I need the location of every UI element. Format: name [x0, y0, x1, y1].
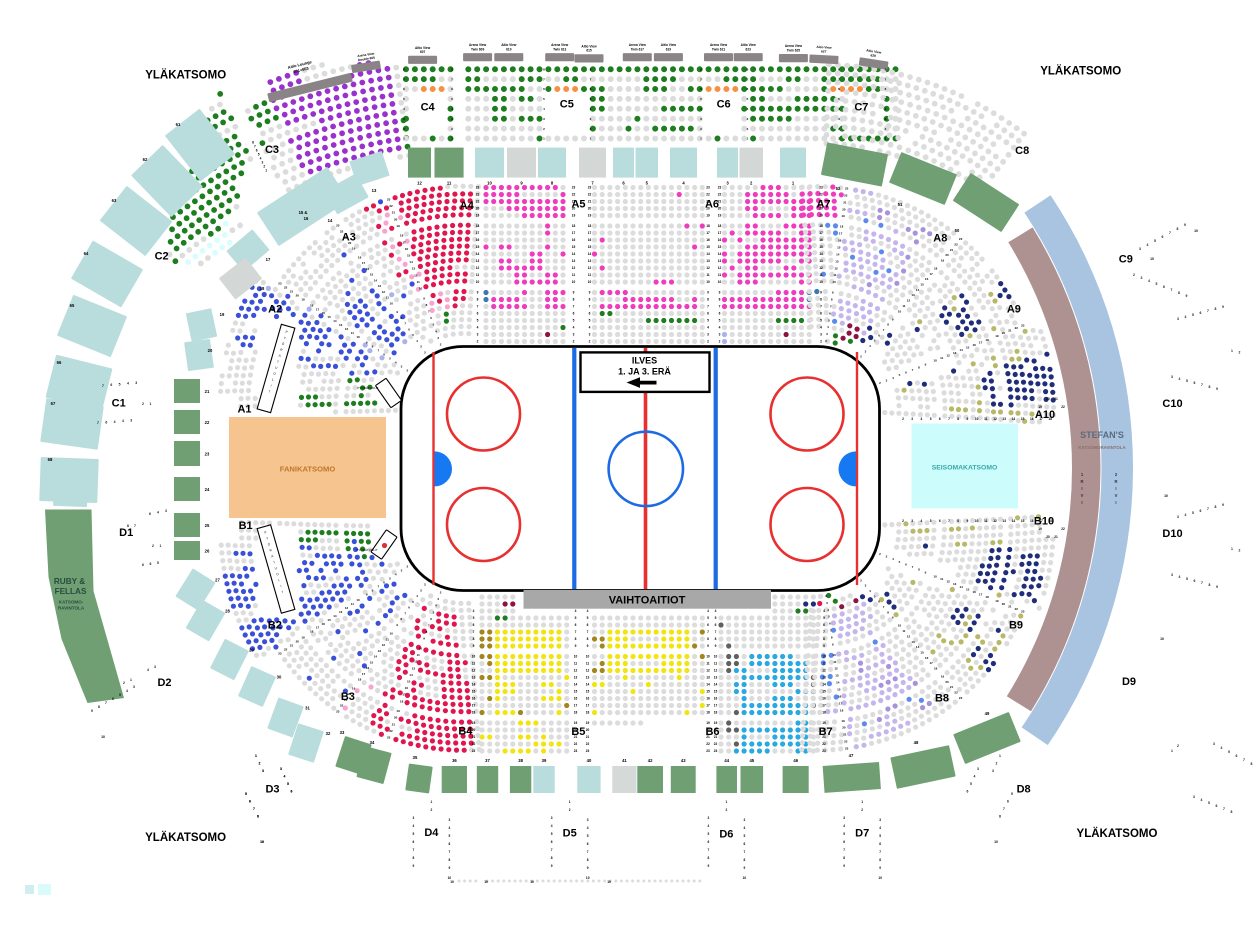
svg-text:610: 610	[506, 47, 512, 51]
svg-text:6: 6	[1007, 800, 1009, 804]
svg-text:6: 6	[256, 149, 258, 153]
svg-text:5: 5	[843, 832, 845, 836]
svg-text:5: 5	[707, 319, 709, 323]
svg-text:18: 18	[310, 303, 314, 307]
svg-text:619: 619	[666, 47, 672, 51]
svg-text:18: 18	[400, 699, 404, 703]
svg-text:11: 11	[572, 273, 576, 277]
svg-text:19: 19	[941, 259, 945, 263]
svg-text:15: 15	[407, 254, 411, 258]
svg-text:22: 22	[714, 742, 718, 746]
svg-text:17: 17	[979, 340, 983, 344]
svg-text:1: 1	[726, 800, 728, 804]
svg-text:14: 14	[476, 252, 480, 256]
svg-text:D10: D10	[1162, 528, 1182, 540]
svg-text:16: 16	[714, 697, 718, 701]
svg-text:23: 23	[387, 736, 391, 740]
svg-text:ILVES: ILVES	[632, 356, 657, 366]
svg-text:10: 10	[819, 280, 823, 284]
svg-text:15: 15	[837, 246, 841, 250]
svg-text:5: 5	[930, 519, 932, 523]
svg-text:11: 11	[714, 662, 718, 666]
svg-text:615: 615	[586, 49, 592, 53]
svg-text:5: 5	[245, 792, 247, 796]
svg-text:A9: A9	[1007, 304, 1021, 316]
svg-text:20: 20	[842, 207, 846, 211]
svg-text:18: 18	[934, 267, 938, 271]
svg-text:4: 4	[122, 419, 124, 423]
svg-text:9: 9	[91, 709, 93, 713]
svg-text:23: 23	[959, 696, 963, 700]
svg-text:6: 6	[249, 800, 251, 804]
svg-text:19: 19	[530, 880, 534, 884]
svg-text:13: 13	[822, 676, 826, 680]
svg-text:14: 14	[836, 252, 840, 256]
svg-text:2: 2	[152, 544, 154, 548]
svg-text:16: 16	[588, 238, 592, 242]
svg-text:9: 9	[589, 291, 591, 295]
svg-text:17: 17	[316, 626, 320, 630]
svg-text:7: 7	[1003, 807, 1005, 811]
svg-text:35: 35	[413, 755, 418, 760]
svg-text:4: 4	[575, 609, 577, 613]
svg-text:19: 19	[995, 599, 999, 603]
svg-text:22: 22	[389, 204, 393, 208]
svg-text:2: 2	[820, 340, 822, 344]
svg-text:I: I	[1081, 500, 1082, 505]
svg-text:4: 4	[974, 775, 976, 779]
svg-text:1: 1	[130, 678, 132, 682]
svg-text:6: 6	[1163, 285, 1165, 289]
svg-text:7: 7	[707, 630, 709, 634]
svg-text:7: 7	[413, 848, 415, 852]
svg-text:14: 14	[836, 681, 840, 685]
svg-text:10: 10	[101, 735, 105, 739]
svg-text:9: 9	[708, 864, 710, 868]
svg-text:10: 10	[832, 653, 836, 657]
svg-text:23: 23	[1021, 323, 1025, 327]
svg-text:22: 22	[1015, 607, 1019, 611]
svg-text:50: 50	[955, 228, 960, 233]
svg-text:19: 19	[995, 334, 999, 338]
svg-text:6: 6	[879, 842, 881, 846]
svg-text:52: 52	[836, 186, 841, 191]
svg-text:17: 17	[822, 704, 826, 708]
svg-text:21: 21	[1008, 604, 1012, 608]
svg-text:19: 19	[941, 675, 945, 679]
svg-text:43: 43	[681, 758, 686, 763]
svg-text:2: 2	[902, 417, 904, 421]
svg-text:4: 4	[114, 420, 116, 424]
svg-text:7: 7	[449, 850, 451, 854]
svg-text:19: 19	[450, 880, 454, 884]
svg-text:14: 14	[572, 252, 576, 256]
svg-text:B9: B9	[1009, 619, 1023, 631]
svg-text:9: 9	[719, 291, 721, 295]
svg-text:3: 3	[1171, 375, 1173, 379]
svg-text:V: V	[1115, 493, 1118, 498]
svg-text:19: 19	[396, 224, 400, 228]
svg-text:10: 10	[706, 280, 710, 284]
svg-text:17: 17	[979, 593, 983, 597]
svg-text:9: 9	[575, 644, 577, 648]
svg-text:6: 6	[939, 519, 941, 523]
svg-text:13: 13	[339, 323, 343, 327]
svg-text:19: 19	[819, 214, 823, 218]
svg-text:2: 2	[861, 808, 863, 812]
svg-text:40: 40	[587, 758, 592, 763]
svg-text:YLÄKATSOMO: YLÄKATSOMO	[145, 831, 226, 844]
svg-text:33: 33	[340, 730, 345, 735]
svg-text:9: 9	[707, 644, 709, 648]
svg-text:19: 19	[472, 721, 476, 725]
svg-text:6: 6	[823, 623, 825, 627]
svg-text:18: 18	[586, 711, 590, 715]
svg-text:11: 11	[940, 577, 944, 581]
svg-text:22: 22	[1015, 326, 1019, 330]
svg-text:21: 21	[476, 200, 480, 204]
svg-text:5: 5	[719, 319, 721, 323]
svg-text:14: 14	[586, 683, 590, 687]
svg-text:2: 2	[123, 681, 125, 685]
svg-text:31: 31	[305, 706, 310, 711]
svg-text:9: 9	[744, 866, 746, 870]
svg-text:12: 12	[993, 417, 997, 421]
svg-text:19: 19	[706, 721, 710, 725]
svg-text:17: 17	[266, 257, 271, 262]
svg-text:6: 6	[477, 312, 479, 316]
svg-text:16: 16	[476, 238, 480, 242]
svg-text:11: 11	[386, 296, 390, 300]
svg-text:9: 9	[551, 864, 553, 868]
svg-text:19: 19	[484, 880, 488, 884]
svg-text:5: 5	[413, 832, 415, 836]
svg-text:8: 8	[957, 519, 959, 523]
svg-text:48: 48	[914, 740, 919, 745]
svg-text:18: 18	[574, 711, 578, 715]
svg-text:1: 1	[1171, 749, 1173, 753]
svg-text:22: 22	[205, 420, 210, 425]
svg-text:14: 14	[333, 614, 337, 618]
svg-text:17: 17	[714, 704, 718, 708]
svg-text:37: 37	[485, 758, 490, 763]
svg-text:4: 4	[715, 609, 717, 613]
svg-text:22: 22	[844, 740, 848, 744]
svg-text:7: 7	[1243, 758, 1245, 762]
svg-text:20: 20	[588, 207, 592, 211]
svg-text:8: 8	[477, 298, 479, 302]
svg-text:67: 67	[51, 401, 56, 406]
svg-text:I: I	[1081, 486, 1082, 491]
svg-text:D2: D2	[157, 677, 171, 689]
svg-text:41: 41	[622, 758, 627, 763]
svg-text:10: 10	[822, 655, 826, 659]
svg-text:39: 39	[542, 758, 547, 763]
svg-text:6: 6	[939, 417, 941, 421]
svg-text:7: 7	[820, 305, 822, 309]
svg-text:4: 4	[260, 157, 262, 161]
svg-text:20: 20	[476, 207, 480, 211]
svg-text:10: 10	[898, 309, 902, 313]
svg-text:18: 18	[358, 255, 362, 259]
svg-text:16: 16	[322, 622, 326, 626]
svg-text:16: 16	[838, 239, 842, 243]
svg-text:12: 12	[834, 266, 838, 270]
svg-text:19: 19	[220, 312, 225, 317]
svg-text:14: 14	[916, 288, 920, 292]
svg-text:12: 12	[819, 266, 823, 270]
svg-text:B7: B7	[819, 726, 833, 738]
svg-text:19: 19	[841, 214, 845, 218]
svg-text:5: 5	[287, 782, 289, 786]
svg-text:23: 23	[845, 747, 849, 751]
svg-text:8: 8	[98, 705, 100, 709]
svg-text:20: 20	[842, 726, 846, 730]
svg-text:6: 6	[551, 840, 553, 844]
svg-text:20: 20	[586, 728, 590, 732]
svg-text:10: 10	[419, 287, 423, 291]
svg-text:3: 3	[1177, 317, 1179, 321]
svg-text:Twin 609: Twin 609	[471, 47, 484, 51]
svg-text:3: 3	[1139, 247, 1141, 251]
svg-text:10: 10	[472, 655, 476, 659]
svg-text:1: 1	[861, 800, 863, 804]
svg-text:7: 7	[134, 524, 136, 528]
svg-text:17: 17	[930, 661, 934, 665]
svg-text:4: 4	[157, 511, 159, 515]
svg-text:15: 15	[472, 690, 476, 694]
svg-text:34: 34	[370, 740, 375, 745]
svg-text:12: 12	[822, 669, 826, 673]
svg-text:1: 1	[255, 754, 257, 758]
svg-text:5: 5	[744, 834, 746, 838]
svg-text:22: 22	[476, 193, 480, 197]
svg-text:A7: A7	[816, 199, 830, 211]
svg-text:27: 27	[215, 578, 220, 583]
svg-text:11: 11	[984, 417, 988, 421]
svg-text:3: 3	[262, 769, 264, 773]
svg-text:5: 5	[449, 834, 451, 838]
svg-text:12: 12	[586, 669, 590, 673]
svg-text:15: 15	[718, 245, 722, 249]
svg-text:13: 13	[953, 351, 957, 355]
svg-text:23: 23	[822, 749, 826, 753]
svg-text:9: 9	[573, 291, 575, 295]
svg-text:5: 5	[879, 834, 881, 838]
svg-text:9: 9	[477, 291, 479, 295]
svg-text:18: 18	[714, 711, 718, 715]
svg-text:A5: A5	[571, 199, 585, 211]
svg-text:11: 11	[902, 304, 906, 308]
svg-text:23: 23	[718, 186, 722, 190]
svg-text:19: 19	[588, 214, 592, 218]
svg-text:I: I	[1115, 486, 1116, 491]
svg-text:4: 4	[823, 609, 825, 613]
svg-text:23: 23	[959, 237, 963, 241]
svg-text:9: 9	[820, 291, 822, 295]
svg-text:12: 12	[907, 634, 911, 638]
svg-text:28: 28	[225, 609, 230, 614]
svg-text:10: 10	[356, 598, 360, 602]
svg-text:19: 19	[396, 709, 400, 713]
svg-text:16: 16	[366, 666, 370, 670]
svg-text:5: 5	[573, 319, 575, 323]
svg-text:19: 19	[718, 214, 722, 218]
svg-text:11: 11	[822, 662, 826, 666]
svg-text:8: 8	[551, 856, 553, 860]
svg-text:4: 4	[1147, 243, 1149, 247]
svg-text:22: 22	[588, 193, 592, 197]
svg-text:8: 8	[843, 856, 845, 860]
svg-text:23: 23	[336, 710, 340, 714]
svg-text:18: 18	[985, 338, 989, 342]
svg-text:17: 17	[706, 231, 710, 235]
svg-text:14: 14	[374, 278, 378, 282]
svg-text:3: 3	[449, 818, 451, 822]
svg-text:5: 5	[587, 834, 589, 838]
svg-text:22: 22	[586, 742, 590, 746]
svg-text:5: 5	[119, 693, 121, 697]
svg-text:14: 14	[706, 683, 710, 687]
svg-text:10: 10	[390, 632, 394, 636]
svg-text:16: 16	[925, 277, 929, 281]
svg-text:20: 20	[945, 253, 949, 257]
svg-text:14: 14	[409, 260, 413, 264]
svg-text:7: 7	[551, 848, 553, 852]
svg-text:22: 22	[819, 193, 823, 197]
svg-text:22: 22	[284, 286, 288, 290]
svg-text:16: 16	[405, 686, 409, 690]
svg-text:17: 17	[572, 231, 576, 235]
svg-text:30: 30	[277, 675, 282, 680]
svg-text:15: 15	[1021, 519, 1025, 523]
svg-text:7: 7	[473, 630, 475, 634]
svg-text:10: 10	[1164, 494, 1168, 498]
svg-text:7: 7	[879, 850, 881, 854]
svg-text:3: 3	[587, 818, 589, 822]
svg-text:16: 16	[572, 238, 576, 242]
svg-text:26: 26	[205, 549, 210, 554]
svg-text:1: 1	[150, 402, 152, 406]
svg-text:C9: C9	[1119, 253, 1133, 265]
svg-text:12: 12	[414, 660, 418, 664]
svg-text:5: 5	[1192, 511, 1194, 515]
svg-text:21: 21	[950, 248, 954, 252]
svg-text:6: 6	[142, 563, 144, 567]
svg-text:16: 16	[819, 238, 823, 242]
svg-text:12: 12	[345, 327, 349, 331]
svg-text:7: 7	[707, 305, 709, 309]
svg-text:10: 10	[586, 655, 590, 659]
svg-text:11: 11	[718, 273, 722, 277]
svg-text:13: 13	[706, 676, 710, 680]
svg-text:7: 7	[1171, 288, 1173, 292]
svg-text:3: 3	[992, 769, 994, 773]
svg-text:5: 5	[477, 319, 479, 323]
svg-text:6: 6	[413, 840, 415, 844]
svg-text:64: 64	[84, 251, 89, 256]
svg-text:7: 7	[1201, 383, 1203, 387]
svg-text:13: 13	[835, 674, 839, 678]
svg-text:4: 4	[587, 609, 589, 613]
svg-text:FANIKATSOMO: FANIKATSOMO	[280, 465, 336, 474]
svg-text:6: 6	[587, 842, 589, 846]
svg-text:2: 2	[1239, 351, 1241, 355]
svg-text:19: 19	[301, 298, 305, 302]
svg-text:22: 22	[472, 742, 476, 746]
svg-text:KATSOMORAVINTOLA: KATSOMORAVINTOLA	[1078, 445, 1126, 450]
svg-text:7: 7	[575, 630, 577, 634]
svg-text:6: 6	[820, 312, 822, 316]
svg-text:9: 9	[473, 644, 475, 648]
svg-text:11: 11	[447, 181, 452, 186]
svg-text:9: 9	[587, 866, 589, 870]
svg-text:11: 11	[706, 273, 710, 277]
svg-text:18: 18	[706, 711, 710, 715]
svg-text:18: 18	[572, 224, 576, 228]
svg-text:11: 11	[984, 519, 988, 523]
svg-text:17: 17	[472, 704, 476, 708]
svg-text:19: 19	[1038, 527, 1042, 531]
svg-text:10: 10	[588, 280, 592, 284]
svg-text:8: 8	[257, 815, 259, 819]
svg-text:D1: D1	[119, 527, 133, 539]
svg-text:8: 8	[820, 298, 822, 302]
svg-text:23: 23	[819, 186, 823, 190]
svg-text:1: 1	[569, 800, 571, 804]
svg-text:13: 13	[378, 284, 382, 288]
svg-text:7: 7	[477, 305, 479, 309]
svg-text:1: 1	[160, 544, 162, 548]
svg-text:21: 21	[1054, 397, 1058, 401]
svg-text:3: 3	[911, 519, 913, 523]
svg-text:22: 22	[954, 691, 958, 695]
svg-text:17: 17	[316, 307, 320, 311]
svg-text:3: 3	[1171, 573, 1173, 577]
svg-text:2: 2	[1133, 273, 1135, 277]
svg-text:16: 16	[706, 238, 710, 242]
svg-text:13: 13	[588, 259, 592, 263]
svg-text:13: 13	[412, 666, 416, 670]
svg-text:15: 15	[370, 660, 374, 664]
svg-text:68: 68	[48, 457, 53, 462]
svg-text:12: 12	[834, 667, 838, 671]
svg-text:20: 20	[208, 348, 213, 353]
svg-text:7: 7	[823, 630, 825, 634]
svg-text:3: 3	[744, 818, 746, 822]
svg-text:9: 9	[843, 864, 845, 868]
svg-text:20: 20	[945, 680, 949, 684]
svg-text:PYÖRÄTUOLIT: PYÖRÄTUOLIT	[357, 386, 378, 390]
svg-text:15: 15	[574, 690, 578, 694]
svg-text:2: 2	[573, 340, 575, 344]
svg-text:10: 10	[448, 876, 452, 880]
svg-text:8: 8	[707, 637, 709, 641]
svg-text:6: 6	[967, 790, 969, 794]
svg-text:7: 7	[105, 701, 107, 705]
svg-text:8: 8	[708, 856, 710, 860]
svg-text:15: 15	[586, 690, 590, 694]
svg-text:11: 11	[351, 331, 355, 335]
svg-text:10: 10	[706, 655, 710, 659]
svg-text:D8: D8	[1017, 784, 1031, 796]
svg-text:47: 47	[849, 753, 854, 758]
svg-text:15: 15	[819, 245, 823, 249]
svg-text:STEFAN'S: STEFAN'S	[1080, 430, 1124, 440]
svg-text:1: 1	[1231, 349, 1233, 353]
svg-text:9: 9	[1184, 223, 1186, 227]
svg-text:Twin 625: Twin 625	[787, 48, 800, 52]
